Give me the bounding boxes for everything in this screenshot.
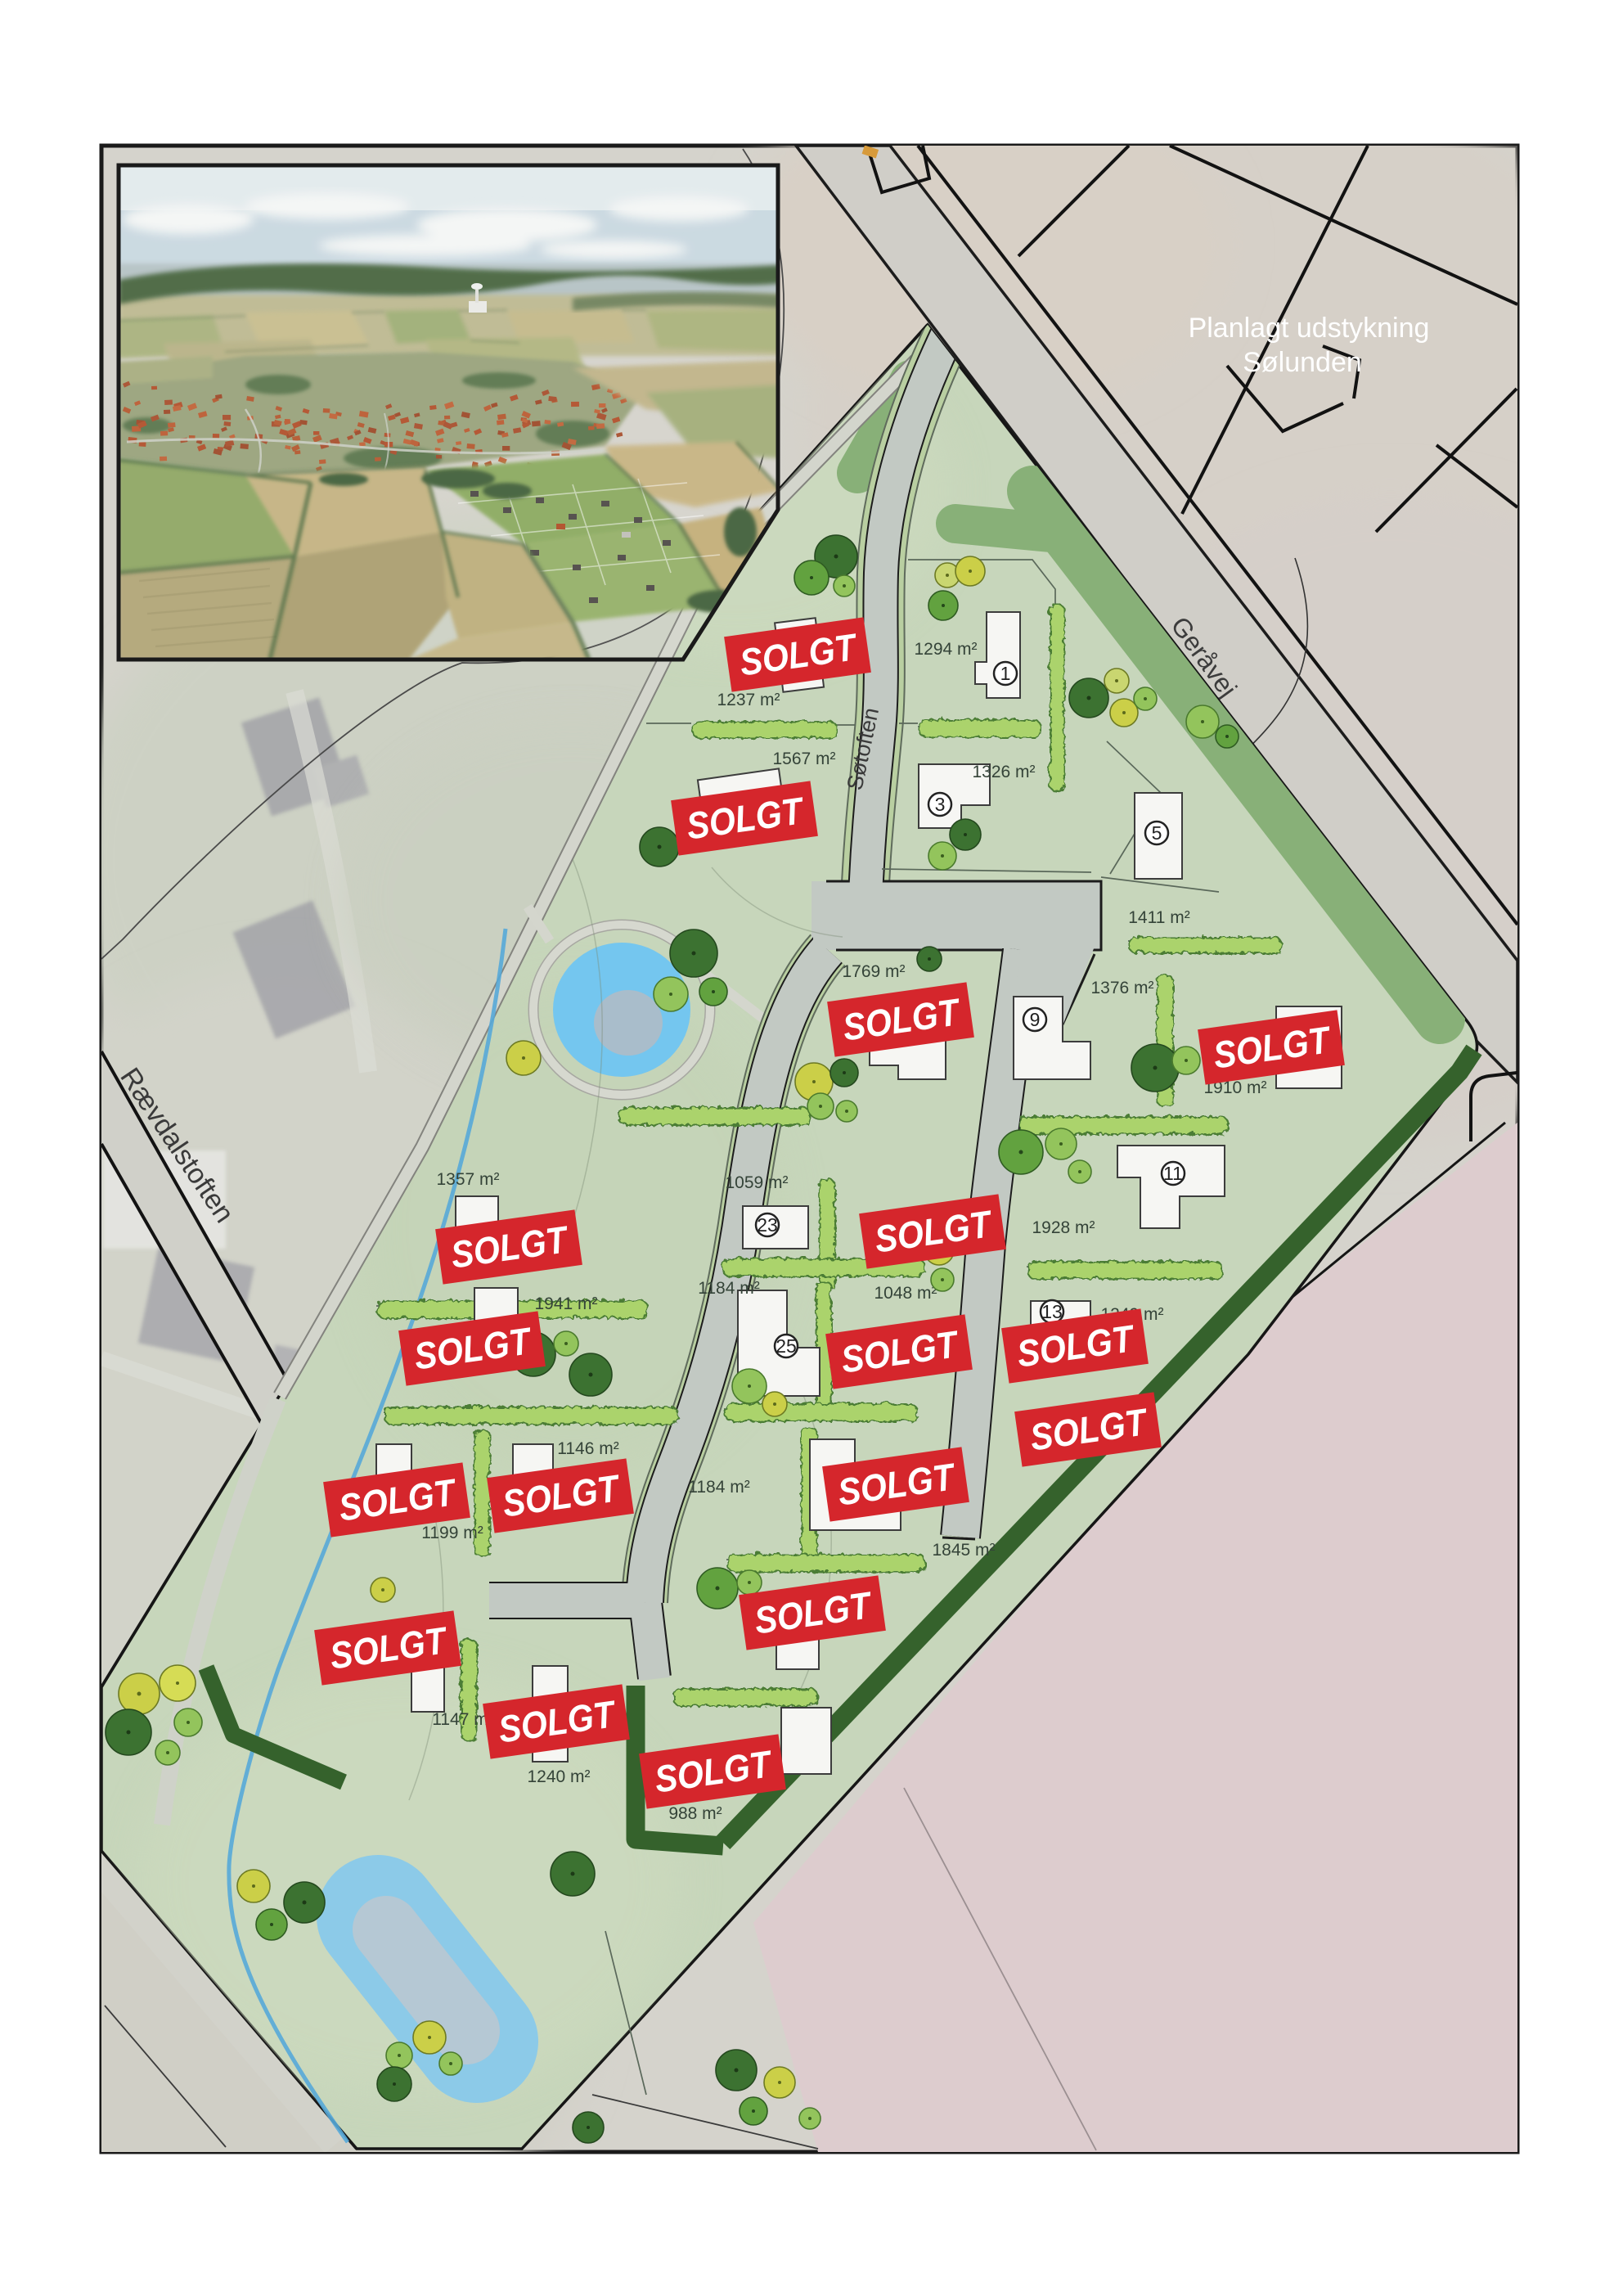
svg-text:9: 9 xyxy=(1030,1009,1041,1030)
svg-text:1326 m²: 1326 m² xyxy=(972,763,1035,781)
svg-text:25: 25 xyxy=(776,1335,797,1357)
svg-text:23: 23 xyxy=(757,1214,778,1236)
svg-text:1184 m²: 1184 m² xyxy=(698,1279,759,1298)
svg-text:988 m²: 988 m² xyxy=(668,1804,722,1823)
svg-text:1294 m²: 1294 m² xyxy=(914,640,977,659)
svg-text:1928 m²: 1928 m² xyxy=(1032,1218,1095,1237)
svg-text:Planlagt udstykning: Planlagt udstykning xyxy=(1189,313,1430,344)
svg-text:5: 5 xyxy=(1152,822,1162,844)
svg-text:1059 m²: 1059 m² xyxy=(725,1173,788,1192)
svg-text:Sølunden: Sølunden xyxy=(1243,347,1362,378)
svg-text:1184 m²: 1184 m² xyxy=(688,1478,749,1497)
svg-text:1048 m²: 1048 m² xyxy=(874,1284,937,1303)
svg-text:1: 1 xyxy=(1000,663,1011,684)
svg-text:1199 m²: 1199 m² xyxy=(421,1524,483,1542)
svg-text:3: 3 xyxy=(935,794,946,815)
svg-text:1237 m²: 1237 m² xyxy=(717,691,780,709)
svg-text:1567 m²: 1567 m² xyxy=(772,750,835,768)
svg-text:1357 m²: 1357 m² xyxy=(436,1170,499,1189)
svg-text:1146 m²: 1146 m² xyxy=(557,1439,618,1458)
svg-text:1411 m²: 1411 m² xyxy=(1128,908,1189,927)
svg-text:1941 m²: 1941 m² xyxy=(534,1294,597,1313)
svg-text:1769 m²: 1769 m² xyxy=(842,962,905,981)
svg-text:1240 m²: 1240 m² xyxy=(527,1767,590,1786)
svg-text:11: 11 xyxy=(1163,1163,1183,1184)
svg-text:1376 m²: 1376 m² xyxy=(1090,979,1153,997)
svg-text:1845 m²: 1845 m² xyxy=(932,1541,995,1560)
svg-text:13: 13 xyxy=(1041,1301,1063,1322)
